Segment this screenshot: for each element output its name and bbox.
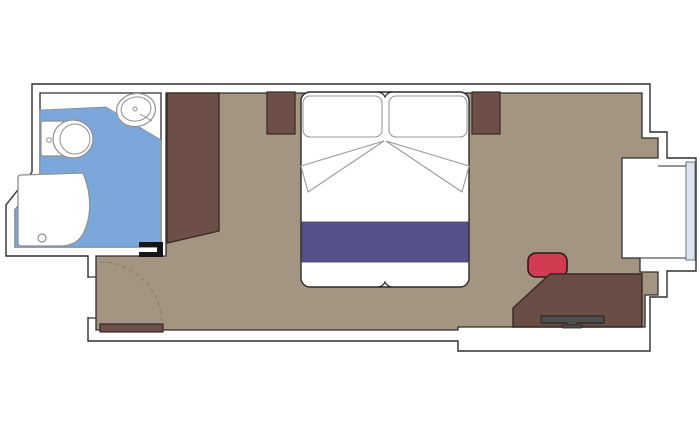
window-glass	[686, 162, 695, 260]
cabin-floor-plan	[0, 0, 700, 433]
nightstand-left	[267, 92, 295, 134]
doorway-gap-mask	[86, 278, 91, 317]
toilet-flush-button	[47, 138, 52, 143]
nightstand-right	[472, 92, 500, 134]
wardrobe	[167, 93, 219, 243]
pillow-left	[303, 96, 382, 137]
entry-door-leaf	[100, 324, 163, 332]
tv-stand-base	[562, 325, 582, 328]
shower-tray	[18, 173, 90, 246]
bathroom-door-bottom-bar	[139, 252, 163, 257]
bed-runner-stripe	[302, 222, 468, 262]
tv-bar	[541, 316, 604, 323]
pillow-right	[389, 96, 467, 137]
toilet-bowl	[53, 120, 93, 158]
floor-plan-drawing	[0, 0, 700, 433]
